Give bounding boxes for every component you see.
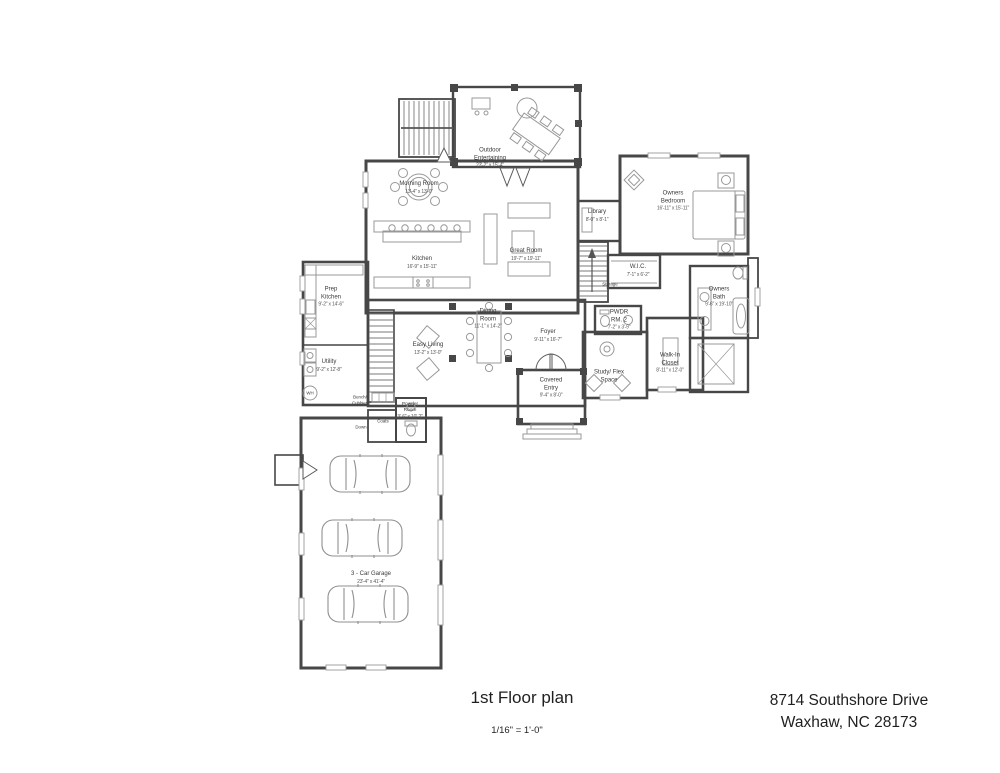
floor-plan-drawing <box>0 0 1000 773</box>
coffee-table <box>512 231 534 253</box>
tub <box>733 298 749 334</box>
address-block: 8714 Southshore Drive Waxhaw, NC 28173 <box>770 690 929 733</box>
garage-cars <box>322 454 410 624</box>
back-stair-treads <box>369 314 393 392</box>
fireplace <box>624 170 644 190</box>
furniture <box>303 98 749 439</box>
media-console <box>484 214 497 264</box>
water-heater <box>303 386 317 400</box>
kitchen-counter-bottom <box>374 277 470 288</box>
dining-table <box>477 311 501 363</box>
toilet <box>733 267 743 279</box>
bed <box>693 191 745 239</box>
range <box>413 277 433 288</box>
kitchen-island <box>383 231 461 242</box>
plan-scale: 1/16" = 1'-0" <box>491 725 543 736</box>
grill <box>472 98 490 109</box>
sofa-bottom <box>508 262 550 276</box>
stairs <box>369 101 607 392</box>
sofa-top <box>508 203 550 218</box>
vanity <box>698 288 711 330</box>
deck-dining-table <box>508 106 566 162</box>
walls <box>275 87 758 668</box>
address-line1: 8714 Southshore Drive <box>770 690 929 712</box>
address-line2: Waxhaw, NC 28173 <box>770 712 929 734</box>
plan-title: 1st Floor plan <box>471 688 574 708</box>
floor-plan-page: Outdoor Entertaining 23'-2" x 15'-4" Mor… <box>0 0 1000 773</box>
